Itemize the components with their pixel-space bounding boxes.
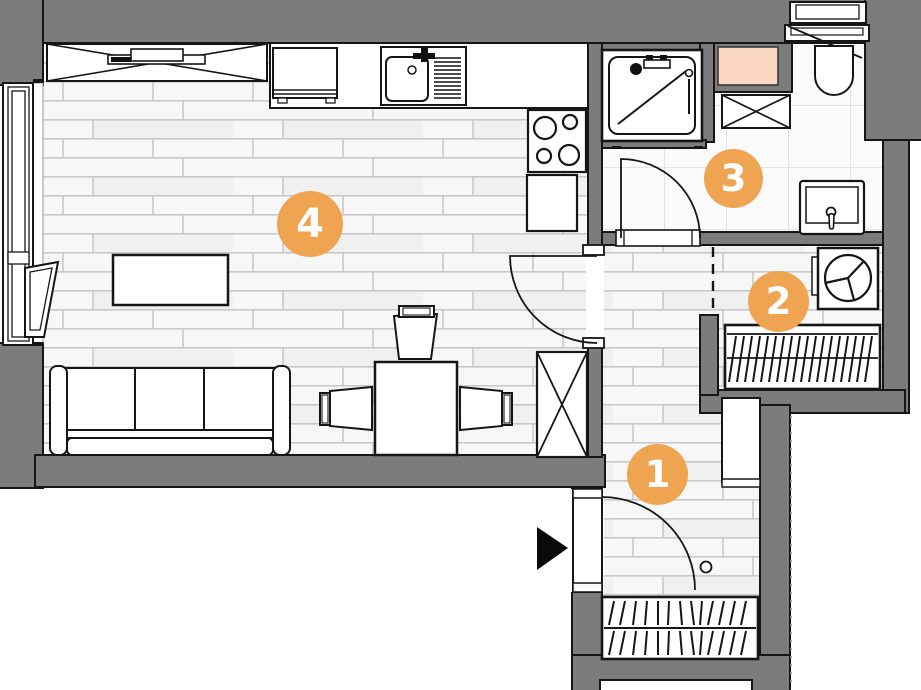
- room-badge-2: 2: [748, 271, 809, 332]
- coffee-table: [113, 255, 228, 305]
- apartment-floor-plan: 4 3 2 1: [0, 0, 921, 690]
- bathroom-cabinet: [722, 95, 790, 128]
- kitchen-appliance: [273, 48, 337, 103]
- room-badge-1: 1: [627, 444, 688, 505]
- stove: [528, 110, 586, 172]
- room-badge-4: 4: [277, 191, 343, 257]
- dining-chair-top: [394, 306, 437, 359]
- dining-chair-right: [460, 387, 512, 430]
- wardrobe-living: [537, 352, 587, 457]
- floor-plan-canvas: [0, 0, 921, 690]
- hallway-wardrobe: [722, 398, 760, 487]
- kitchen-cabinet: [527, 175, 577, 231]
- bathroom-sink: [800, 181, 864, 234]
- entry-arrow-icon: [537, 527, 568, 570]
- kitchen-sink: [381, 47, 466, 105]
- room-badge-3: 3: [704, 149, 763, 208]
- shower: [602, 50, 703, 149]
- fan-unit: [812, 248, 878, 309]
- ventilation-duct: [718, 47, 778, 85]
- radiator: [725, 325, 880, 389]
- dining-chair-left: [320, 387, 372, 430]
- dining-table: [375, 362, 457, 455]
- sofa: [50, 366, 290, 455]
- neighbor-door: [600, 680, 752, 690]
- doormat: [602, 597, 758, 659]
